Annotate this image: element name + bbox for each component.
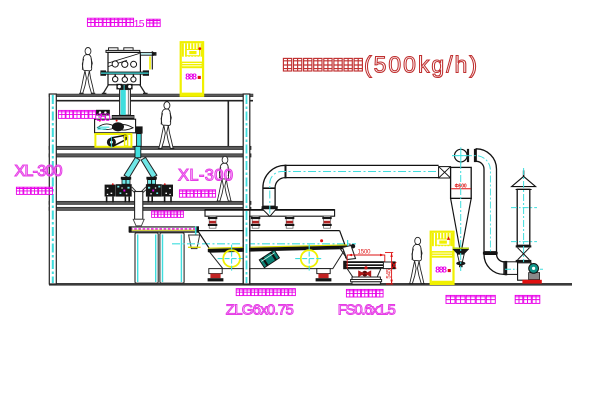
svg-text:888: 888 [185,72,197,82]
svg-text:1.5: 1.5 [134,18,145,30]
svg-text:(500kg/h): (500kg/h) [364,52,477,78]
svg-text:350: 350 [96,112,111,124]
svg-text:ZLG6x0.75: ZLG6x0.75 [226,302,294,319]
svg-text:XL-300: XL-300 [178,166,233,184]
svg-text:545: 545 [386,268,392,279]
svg-text:888: 888 [435,265,447,275]
svg-text:1500: 1500 [358,249,372,255]
svg-text:FS0.6x1.5: FS0.6x1.5 [338,302,396,319]
svg-text:XL-300: XL-300 [15,163,63,180]
